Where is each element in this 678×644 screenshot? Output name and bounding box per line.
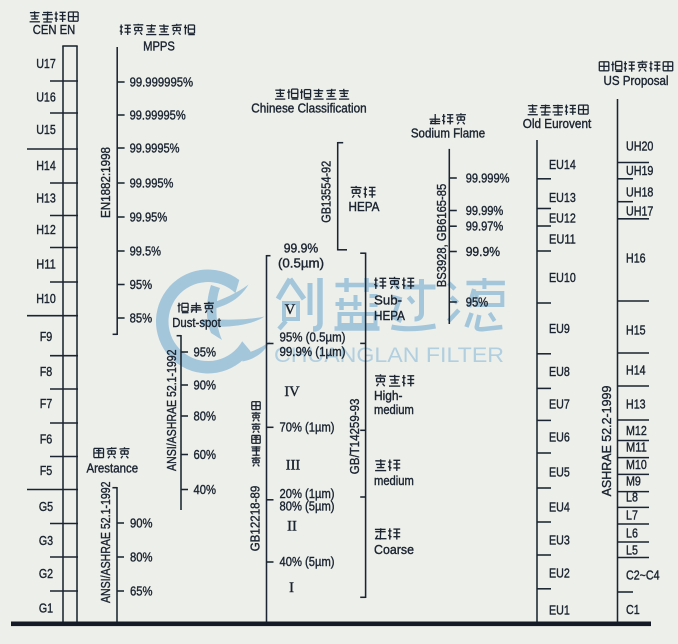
svg-text:EU9: EU9	[549, 322, 570, 336]
svg-text:99.9% (1µm): 99.9% (1µm)	[280, 345, 346, 359]
svg-text:Sub-: Sub-	[374, 293, 402, 307]
svg-text:85%: 85%	[130, 311, 153, 325]
svg-text:G3: G3	[39, 534, 53, 548]
svg-text:90%: 90%	[194, 378, 217, 392]
svg-text:HEPA: HEPA	[349, 200, 381, 214]
svg-text:L7: L7	[626, 508, 638, 522]
svg-text:UH19: UH19	[626, 164, 653, 178]
svg-text:C1: C1	[626, 603, 640, 617]
svg-text:III: III	[286, 458, 301, 474]
svg-text:F5: F5	[40, 464, 53, 478]
svg-text:ANSI/ASHRAE 52.1-1992: ANSI/ASHRAE 52.1-1992	[99, 482, 113, 604]
svg-text:HEPA: HEPA	[374, 309, 406, 323]
svg-text:C2~C4: C2~C4	[626, 568, 660, 582]
svg-text:H11: H11	[36, 257, 56, 271]
svg-text:U15: U15	[36, 123, 56, 137]
svg-text:Arestance: Arestance	[86, 461, 138, 475]
svg-text:EU4: EU4	[549, 500, 570, 514]
svg-text:G1: G1	[39, 601, 53, 615]
svg-text:EU10: EU10	[549, 271, 576, 285]
svg-text:II: II	[287, 519, 297, 535]
svg-text:99.995%: 99.995%	[130, 176, 174, 190]
svg-text:L5: L5	[626, 543, 638, 557]
svg-text:Old Eurovent: Old Eurovent	[523, 117, 592, 131]
svg-text:UH20: UH20	[626, 139, 653, 153]
svg-text:(0.5µm): (0.5µm)	[278, 256, 324, 270]
svg-text:G2: G2	[39, 567, 53, 581]
svg-text:Coarse: Coarse	[374, 543, 414, 557]
svg-text:H15: H15	[626, 323, 646, 337]
svg-text:L6: L6	[626, 526, 638, 540]
svg-text:H13: H13	[36, 192, 56, 206]
svg-text:F8: F8	[40, 365, 53, 379]
svg-text:U16: U16	[36, 90, 56, 104]
svg-text:99.99995%: 99.99995%	[130, 108, 186, 122]
svg-text:High-: High-	[374, 389, 403, 403]
svg-text:H14: H14	[626, 363, 646, 377]
svg-text:MPPS: MPPS	[143, 39, 175, 53]
svg-text:M12: M12	[626, 424, 647, 438]
svg-text:99.999%: 99.999%	[466, 171, 510, 185]
svg-text:99.99%: 99.99%	[466, 204, 504, 218]
svg-text:EU6: EU6	[549, 430, 570, 444]
svg-text:M10: M10	[626, 458, 647, 472]
svg-text:EU11: EU11	[549, 232, 576, 246]
svg-text:60%: 60%	[194, 448, 217, 462]
svg-text:IV: IV	[284, 384, 300, 400]
svg-text:L8: L8	[626, 490, 638, 504]
svg-text:I: I	[289, 580, 294, 596]
svg-text:EU5: EU5	[549, 465, 570, 479]
svg-text:80%: 80%	[130, 550, 153, 564]
svg-text:GB/T14259-93: GB/T14259-93	[348, 399, 362, 475]
svg-text:40% (5µm): 40% (5µm)	[280, 555, 335, 569]
svg-text:EU1: EU1	[549, 603, 570, 617]
svg-text:CEN EN: CEN EN	[33, 23, 76, 37]
svg-text:EU12: EU12	[549, 211, 576, 225]
svg-text:F9: F9	[40, 330, 53, 344]
svg-text:70% (1µm): 70% (1µm)	[280, 421, 335, 435]
svg-text:95%: 95%	[130, 278, 153, 292]
svg-text:UH18: UH18	[626, 186, 653, 200]
svg-text:90%: 90%	[130, 516, 153, 530]
svg-text:US Proposal: US Proposal	[604, 74, 669, 88]
svg-text:80% (5µm): 80% (5µm)	[280, 500, 335, 514]
svg-text:ASHRAE 52.2-1999: ASHRAE 52.2-1999	[600, 386, 614, 497]
svg-text:H12: H12	[36, 223, 56, 237]
svg-text:99.9995%: 99.9995%	[130, 141, 180, 155]
svg-text:EU13: EU13	[549, 191, 576, 205]
svg-text:G5: G5	[39, 500, 53, 514]
svg-text:65%: 65%	[130, 584, 153, 598]
svg-text:H10: H10	[36, 292, 56, 306]
svg-text:H16: H16	[626, 251, 646, 265]
svg-text:40%: 40%	[194, 483, 217, 497]
svg-text:M9: M9	[626, 474, 641, 488]
svg-text:99.97%: 99.97%	[466, 220, 504, 234]
svg-text:F7: F7	[40, 397, 53, 411]
svg-text:GB13554-92: GB13554-92	[319, 161, 333, 223]
svg-text:Dust-spot: Dust-spot	[172, 316, 221, 330]
svg-text:medium: medium	[374, 403, 414, 417]
svg-text:99.999995%: 99.999995%	[130, 75, 194, 89]
svg-text:F6: F6	[40, 432, 53, 446]
svg-text:H13: H13	[626, 397, 646, 411]
svg-text:Chinese Classification: Chinese Classification	[251, 101, 366, 115]
svg-text:80%: 80%	[194, 409, 217, 423]
svg-text:EU7: EU7	[549, 397, 570, 411]
svg-text:EU8: EU8	[549, 365, 570, 379]
svg-text:99.9%: 99.9%	[466, 245, 500, 259]
svg-text:EU2: EU2	[549, 566, 570, 580]
svg-text:ANSI/ASHRAE 52.1-1992: ANSI/ASHRAE 52.1-1992	[165, 349, 179, 471]
svg-text:GB12218-89: GB12218-89	[248, 486, 262, 552]
svg-text:U17: U17	[36, 57, 56, 71]
svg-text:95%: 95%	[194, 345, 217, 359]
svg-text:95% (0.5µm): 95% (0.5µm)	[280, 331, 346, 345]
svg-text:BS3928, GB6165-85: BS3928, GB6165-85	[435, 184, 449, 288]
svg-text:M11: M11	[626, 440, 647, 454]
svg-text:Sodium Flame: Sodium Flame	[411, 127, 485, 141]
svg-text:99.5%: 99.5%	[130, 244, 161, 258]
svg-text:99.95%: 99.95%	[130, 210, 168, 224]
svg-text:V: V	[285, 302, 296, 318]
svg-text:EN1882:1998: EN1882:1998	[99, 147, 113, 218]
svg-text:EU3: EU3	[549, 533, 570, 547]
svg-text:medium: medium	[374, 474, 414, 488]
svg-text:95%: 95%	[466, 295, 489, 309]
svg-text:H14: H14	[36, 159, 56, 173]
svg-text:EU14: EU14	[549, 158, 576, 172]
svg-text:99.9%: 99.9%	[284, 241, 318, 255]
svg-text:UH17: UH17	[626, 204, 653, 218]
